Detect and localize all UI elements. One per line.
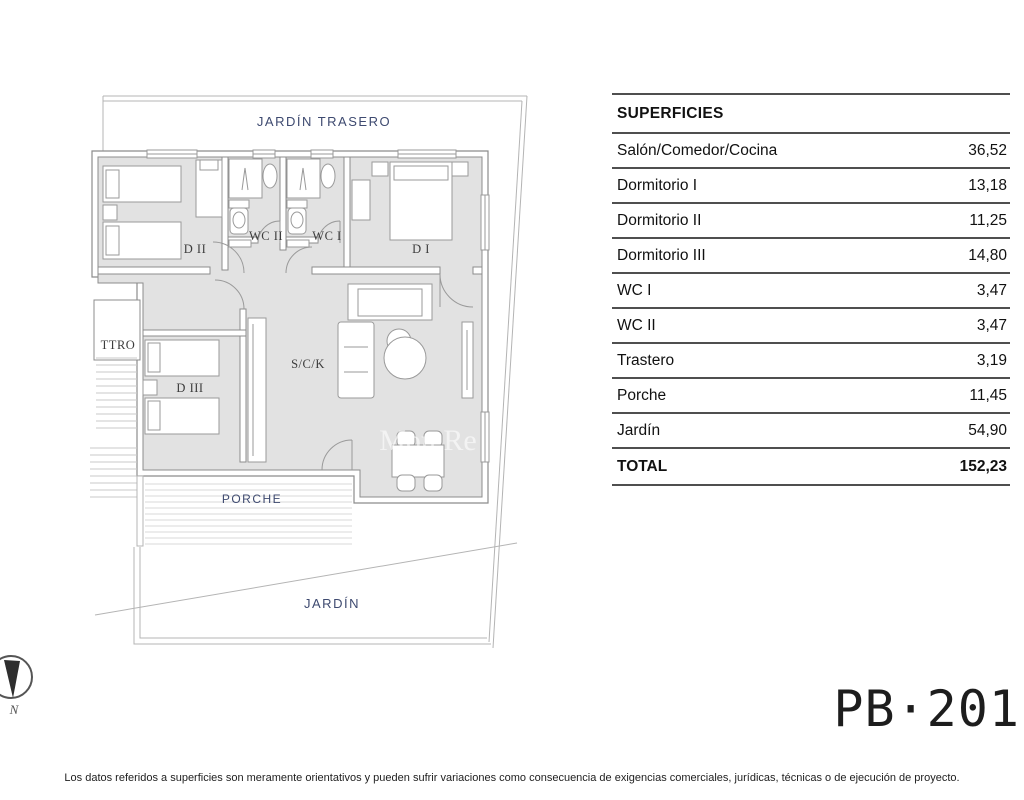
row-value: 36,52 [968,142,1007,160]
table-row: WC II 3,47 [612,309,1010,344]
table-row: Jardín 54,90 [612,414,1010,449]
label-wc-2: WC II [249,229,283,243]
row-label: Dormitorio III [617,247,706,265]
table-row: Dormitorio III 14,80 [612,239,1010,274]
disclaimer-text: Los datos referidos a superficies son me… [0,772,1024,784]
porch-hatch [137,476,352,546]
total-value: 152,23 [960,458,1007,476]
row-label: Trastero [617,352,674,370]
label-porche: PORCHE [222,492,282,506]
row-label: Porche [617,387,666,405]
label-dormitorio-3: D III [176,381,203,395]
table-row-total: TOTAL 152,23 [612,449,1010,486]
row-value: 3,19 [977,352,1007,370]
label-dormitorio-1: D I [412,242,430,256]
label-wc-1: WC I [312,229,341,243]
label-dormitorio-2: D II [184,242,206,256]
row-value: 3,47 [977,282,1007,300]
table-row: Dormitorio II 11,25 [612,204,1010,239]
row-value: 11,25 [969,212,1007,230]
label-jardin: JARDÍN [304,596,360,611]
table-row: Dormitorio I 13,18 [612,169,1010,204]
north-label: N [9,702,20,717]
table-row: Salón/Comedor/Cocina 36,52 [612,134,1010,169]
row-value: 14,80 [968,247,1007,265]
stairs-hatch [90,358,137,497]
table-row: Porche 11,45 [612,379,1010,414]
row-label: Jardín [617,422,660,440]
row-label: Dormitorio I [617,177,697,195]
row-value: 13,18 [968,177,1007,195]
row-value: 3,47 [977,317,1007,335]
row-label: Dormitorio II [617,212,701,230]
table-row: WC I 3,47 [612,274,1010,309]
surfaces-table: SUPERFICIES Salón/Comedor/Cocina 36,52 D… [612,93,1010,486]
watermark-text: Mon Re [379,424,477,457]
row-label: WC II [617,317,656,335]
row-label: WC I [617,282,651,300]
row-value: 54,90 [968,422,1007,440]
row-value: 11,45 [969,387,1007,405]
total-label: TOTAL [617,458,667,476]
plan-code: PB·201 [833,684,1020,734]
row-label: Salón/Comedor/Cocina [617,142,777,160]
label-salon: S/C/K [291,357,325,371]
label-trastero: TTRO [101,338,136,352]
surfaces-table-title: SUPERFICIES [612,93,1010,134]
label-jardin-trasero: JARDÍN TRASERO [257,114,391,129]
table-row: Trastero 3,19 [612,344,1010,379]
north-arrow-icon: N [0,656,32,717]
